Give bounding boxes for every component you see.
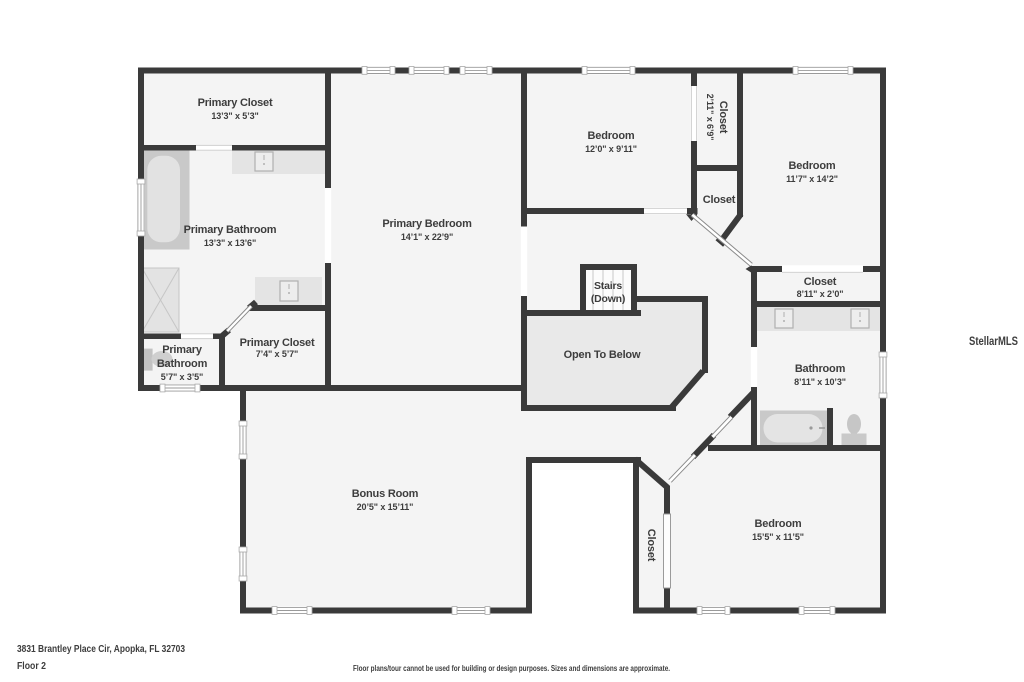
svg-text:Primary: Primary bbox=[162, 344, 203, 356]
svg-text:5’7" x 3’5": 5’7" x 3’5" bbox=[161, 372, 203, 382]
svg-text:12’0" x 9’11": 12’0" x 9’11" bbox=[585, 144, 637, 154]
svg-text:Bedroom: Bedroom bbox=[789, 160, 836, 172]
svg-text:14’1" x 22’9": 14’1" x 22’9" bbox=[401, 232, 453, 242]
svg-text:Bathroom: Bathroom bbox=[795, 363, 846, 375]
svg-text:Bathroom: Bathroom bbox=[157, 358, 208, 370]
svg-text:Floor plans/tour cannot be use: Floor plans/tour cannot be used for buil… bbox=[353, 664, 670, 673]
svg-text:Closet: Closet bbox=[804, 276, 837, 288]
svg-text:Primary Closet: Primary Closet bbox=[198, 97, 273, 109]
svg-text:Open To Below: Open To Below bbox=[564, 349, 641, 361]
svg-text:2’11" x 6’9": 2’11" x 6’9" bbox=[705, 94, 715, 141]
svg-text:Bonus Room: Bonus Room bbox=[352, 488, 419, 500]
svg-text:20’5" x 15’11": 20’5" x 15’11" bbox=[357, 502, 414, 512]
svg-text:Closet: Closet bbox=[717, 101, 729, 134]
svg-text:13’3" x 13’6": 13’3" x 13’6" bbox=[204, 238, 256, 248]
svg-text:3831 Brantley Place Cir, Apopk: 3831 Brantley Place Cir, Apopka, FL 3270… bbox=[17, 643, 185, 655]
svg-text:13’3" x 5’3": 13’3" x 5’3" bbox=[211, 111, 258, 121]
svg-text:Floor 2: Floor 2 bbox=[17, 660, 46, 672]
svg-text:Closet: Closet bbox=[703, 194, 736, 206]
svg-text:11’7" x 14’2": 11’7" x 14’2" bbox=[786, 174, 838, 184]
svg-text:15’5" x 11’5": 15’5" x 11’5" bbox=[752, 532, 804, 542]
svg-text:Primary Bathroom: Primary Bathroom bbox=[184, 224, 277, 236]
svg-text:Bedroom: Bedroom bbox=[588, 130, 635, 142]
svg-text:8’11" x 2’0": 8’11" x 2’0" bbox=[797, 289, 844, 299]
svg-text:Stairs: Stairs bbox=[594, 280, 622, 292]
svg-text:7’4" x 5’7": 7’4" x 5’7" bbox=[256, 349, 298, 359]
svg-text:Closet: Closet bbox=[645, 529, 657, 562]
svg-text:(Down): (Down) bbox=[591, 293, 625, 305]
svg-text:Primary Closet: Primary Closet bbox=[240, 337, 315, 349]
svg-text:Bedroom: Bedroom bbox=[755, 518, 802, 530]
svg-text:Primary Bedroom: Primary Bedroom bbox=[382, 218, 472, 230]
svg-text:StellarMLS: StellarMLS bbox=[969, 336, 1018, 348]
svg-text:8’11" x 10’3": 8’11" x 10’3" bbox=[794, 377, 846, 387]
